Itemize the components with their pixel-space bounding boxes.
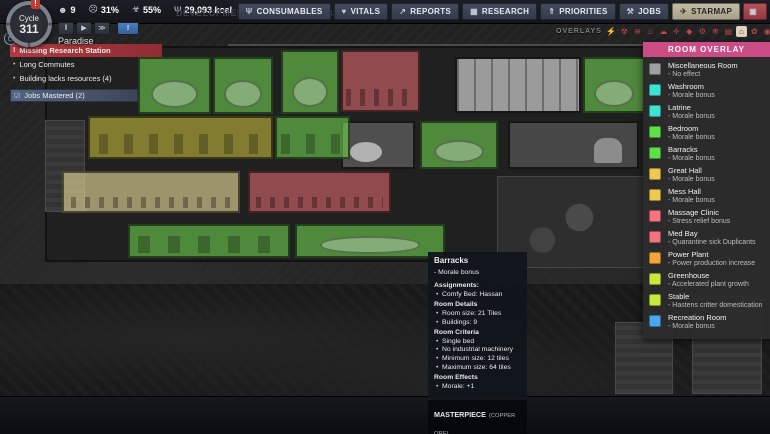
- room-overlay-region[interactable]: [213, 57, 273, 114]
- overlay-icon[interactable]: ◆: [684, 26, 695, 37]
- legend-swatch: [649, 168, 661, 180]
- playback-button[interactable]: ≫: [94, 22, 110, 35]
- legend-swatch: [649, 84, 661, 96]
- resource-icon: ☻: [58, 5, 67, 15]
- menu-button[interactable]: ♥ VITALS: [334, 3, 389, 20]
- menu-button-icon: ▣: [749, 7, 757, 16]
- room-overlay-region[interactable]: [88, 116, 273, 159]
- legend-item: Greenhouse - Accelerated plant growth: [649, 272, 764, 289]
- notification[interactable]: • Long Commutes: [10, 58, 180, 71]
- legend-room-effect: - Accelerated plant growth: [668, 281, 749, 289]
- menu-button-icon: Ψ: [246, 7, 253, 16]
- overlay-icon[interactable]: ❄: [710, 26, 721, 37]
- notification-text: Jobs Mastered (2): [24, 91, 84, 100]
- legend-room-effect: - Hastens critter domestication: [668, 302, 763, 310]
- notification-list: ! Missing Research Station • Long Commut…: [10, 44, 180, 103]
- notification-icon: •: [13, 75, 15, 82]
- legend-item: Miscellaneous Room - No effect: [649, 62, 764, 79]
- top-menu: Ψ CONSUMABLES ♥ VITALS ↗ REPORTS ▦ RESEA…: [238, 3, 767, 20]
- tooltip-line: Comfy Bed: Hassan: [434, 291, 522, 300]
- legend-swatch: [649, 315, 661, 327]
- legend-room-name: Massage Clinic: [668, 209, 730, 218]
- notification-text: Missing Research Station: [19, 46, 110, 55]
- menu-button[interactable]: Ψ CONSUMABLES: [238, 3, 331, 20]
- masterpiece-section: MASTERPIECE(COPPER ORE) Masterpiece: [428, 400, 527, 434]
- notification-icon: •: [13, 61, 15, 68]
- legend-room-name: Washroom: [668, 83, 715, 92]
- overlay-icon[interactable]: ≋: [632, 26, 643, 37]
- tooltip-line: Minimum size: 12 tiles: [434, 355, 522, 364]
- menu-button-label: VITALS: [351, 7, 381, 16]
- overlay-icon[interactable]: ✛: [671, 26, 682, 37]
- overlay-icon[interactable]: ⚙: [697, 26, 708, 37]
- tooltip-line: Room Effects: [434, 374, 522, 383]
- overlay-icon[interactable]: ☁: [658, 26, 669, 37]
- resource-icon: ☹: [89, 4, 98, 15]
- legend-room-effect: - Stress relief bonus: [668, 218, 730, 226]
- legend-room-effect: - Morale bonus: [668, 155, 715, 163]
- legend-swatch: [649, 252, 661, 264]
- legend-room-name: Med Bay: [668, 230, 756, 239]
- room-tooltip: Barracks- Morale bonusAssignments:Comfy …: [428, 252, 527, 434]
- legend-item: Great Hall - Morale bonus: [649, 167, 764, 184]
- legend-swatch: [649, 147, 661, 159]
- resource-stat: ☣ 55%: [132, 4, 161, 15]
- room-overlay-region[interactable]: [275, 116, 350, 159]
- menu-button[interactable]: ↗ REPORTS: [391, 3, 459, 20]
- bottom-bar: [0, 396, 770, 434]
- legend-swatch: [649, 189, 661, 201]
- notification-text: Long Commutes: [19, 60, 74, 69]
- legend-item: Power Plant - Power production increase: [649, 251, 764, 268]
- tooltip-line: No industrial machinery: [434, 346, 522, 355]
- legend-room-effect: - Morale bonus: [668, 176, 715, 184]
- legend-swatch: [649, 294, 661, 306]
- legend-room-effect: - Quarantine sick Duplicants: [668, 239, 756, 247]
- overlay-icon[interactable]: ▤: [723, 26, 734, 37]
- playback-button[interactable]: ‖: [58, 22, 74, 35]
- resource-value: 9: [70, 5, 75, 15]
- legend-item: Stable - Hastens critter domestication: [649, 293, 764, 310]
- legend-swatch: [649, 231, 661, 243]
- legend-room-effect: - Morale bonus: [668, 92, 715, 100]
- legend-room-name: Barracks: [668, 146, 715, 155]
- legend-title: ROOM OVERLAY: [643, 42, 770, 57]
- legend-room-effect: - Morale bonus: [668, 197, 715, 205]
- notification-text: Building lacks resources (4): [19, 74, 111, 83]
- notification-icon: !: [13, 47, 15, 54]
- menu-button[interactable]: ⇑ PRIORITIES: [540, 3, 615, 20]
- legend-item: Barracks - Morale bonus: [649, 146, 764, 163]
- legend-room-effect: - Morale bonus: [668, 323, 726, 331]
- menu-button-icon: ⇑: [548, 7, 555, 16]
- legend-room-name: Mess Hall: [668, 188, 715, 197]
- room-overlay-region[interactable]: [62, 171, 240, 213]
- legend-item: Mess Hall - Morale bonus: [649, 188, 764, 205]
- menu-button-label: REPORTS: [410, 7, 451, 16]
- legend-swatch: [649, 105, 661, 117]
- resource-stat: ☻ 9: [58, 5, 76, 15]
- tooltip-line: Morale: +1: [434, 383, 522, 392]
- playback-controls: ‖▶≫!: [58, 22, 139, 35]
- cycle-badge[interactable]: Cycle 311 !: [6, 1, 52, 47]
- legend-room-effect: - Power production increase: [668, 260, 755, 268]
- legend-room-effect: - Morale bonus: [668, 134, 715, 142]
- resource-stat: ☹ 31%: [89, 4, 119, 15]
- legend-room-name: Recreation Room: [668, 314, 726, 323]
- menu-button-label: STARMAP: [691, 7, 732, 16]
- legend-item: Massage Clinic - Stress relief bonus: [649, 209, 764, 226]
- map-structure: [455, 57, 581, 113]
- legend-room-effect: - Morale bonus: [668, 113, 715, 121]
- tooltip-line: Room Criteria: [434, 329, 522, 338]
- resource-icon: ☣: [132, 4, 140, 15]
- notification[interactable]: • Building lacks resources (4): [10, 72, 180, 85]
- menu-button[interactable]: ⚒ JOBS: [619, 3, 669, 20]
- room-overlay-legend: ROOM OVERLAY Miscellaneous Room - No eff…: [643, 42, 770, 339]
- menu-button[interactable]: ▣: [743, 3, 767, 20]
- overlays-bar: OVERLAYS ⚡☢≋♨☁✛◆⚙❄▤⌂✿◉▦: [556, 26, 770, 37]
- legend-item: Med Bay - Quarantine sick Duplicants: [649, 230, 764, 247]
- playback-button[interactable]: ▶: [76, 22, 92, 35]
- menu-button[interactable]: ▦ RESEARCH: [462, 3, 537, 20]
- menu-button-icon: ↗: [399, 7, 406, 16]
- tooltip-line: Maximum size: 64 tiles: [434, 364, 522, 373]
- room-overlay-region[interactable]: [583, 57, 645, 113]
- legend-item: Latrine - Morale bonus: [649, 104, 764, 121]
- menu-button[interactable]: ✈ STARMAP: [672, 3, 740, 20]
- resource-value: 55%: [143, 5, 161, 15]
- overlay-icon[interactable]: ♨: [645, 26, 656, 37]
- legend-room-name: Greenhouse: [668, 272, 749, 281]
- room-overlay-region[interactable]: [341, 50, 420, 112]
- legend-room-name: Great Hall: [668, 167, 715, 176]
- overlay-icon[interactable]: ⌂: [736, 26, 747, 37]
- legend-room-name: Latrine: [668, 104, 715, 113]
- playback-button[interactable]: !: [117, 22, 139, 35]
- game-screen: Cycle 311 ! ☻ 9 ☹ 31% ☣ 55% Ψ 29,093 kca…: [0, 0, 770, 434]
- tooltip-line: Buildings: 9: [434, 319, 522, 328]
- menu-button-label: RESEARCH: [482, 7, 529, 16]
- legend-room-effect: - No effect: [668, 71, 738, 79]
- room-overlay-region[interactable]: [248, 171, 391, 213]
- legend-room-name: Stable: [668, 293, 763, 302]
- cycle-alert-icon: !: [31, 0, 40, 9]
- menu-button-icon: ♥: [342, 7, 347, 16]
- tooltip-line: Barracks: [434, 257, 522, 266]
- room-overlay-region[interactable]: [281, 50, 339, 114]
- legend-swatch: [649, 126, 661, 138]
- legend-item: Washroom - Morale bonus: [649, 83, 764, 100]
- legend-item: Bedroom - Morale bonus: [649, 125, 764, 142]
- notification[interactable]: ☑ Jobs Mastered (2): [10, 89, 138, 102]
- overlay-icon[interactable]: ⚡: [606, 26, 617, 37]
- overlay-icon[interactable]: ✿: [749, 26, 760, 37]
- overlay-icon[interactable]: ☢: [619, 26, 630, 37]
- tooltip-line: - Morale bonus: [434, 269, 522, 278]
- tooltip-line: Assignments:: [434, 282, 522, 291]
- legend-room-name: Power Plant: [668, 251, 755, 260]
- legend-swatch: [649, 273, 661, 285]
- menu-button-label: PRIORITIES: [559, 7, 607, 16]
- room-overlay-region[interactable]: [295, 224, 445, 258]
- menu-button-label: JOBS: [638, 7, 661, 16]
- legend-items: Miscellaneous Room - No effect Washroom …: [643, 57, 770, 339]
- overlays-label: OVERLAYS: [556, 28, 602, 35]
- map-structure: [341, 121, 415, 169]
- notification-icon: ☑: [14, 92, 20, 100]
- menu-button-icon: ✈: [680, 7, 687, 16]
- menu-button-icon: ⚒: [627, 7, 634, 16]
- menu-button-icon: ▦: [470, 7, 478, 16]
- tooltip-line: Room size: 21 Tiles: [434, 310, 522, 319]
- masterpiece-title: MASTERPIECE: [434, 410, 486, 419]
- tooltip-line: Single bed: [434, 338, 522, 347]
- map-structure: [508, 121, 639, 169]
- overlay-icons: ⚡☢≋♨☁✛◆⚙❄▤⌂✿◉▦: [606, 26, 770, 37]
- room-overlay-region[interactable]: [420, 121, 498, 169]
- legend-room-name: Miscellaneous Room: [668, 62, 738, 71]
- legend-swatch: [649, 63, 661, 75]
- room-tooltip-body: Barracks- Morale bonusAssignments:Comfy …: [428, 252, 527, 397]
- room-overlay-region[interactable]: [128, 224, 290, 258]
- cycle-number: 311: [19, 23, 38, 35]
- legend-item: Recreation Room - Morale bonus: [649, 314, 764, 331]
- tooltip-line: Room Details: [434, 301, 522, 310]
- legend-swatch: [649, 210, 661, 222]
- overlay-icon[interactable]: ◉: [762, 26, 770, 37]
- legend-room-name: Bedroom: [668, 125, 715, 134]
- resource-value: 31%: [101, 5, 119, 15]
- menu-button-label: CONSUMABLES: [257, 7, 323, 16]
- colony-name: Paradise: [58, 36, 94, 46]
